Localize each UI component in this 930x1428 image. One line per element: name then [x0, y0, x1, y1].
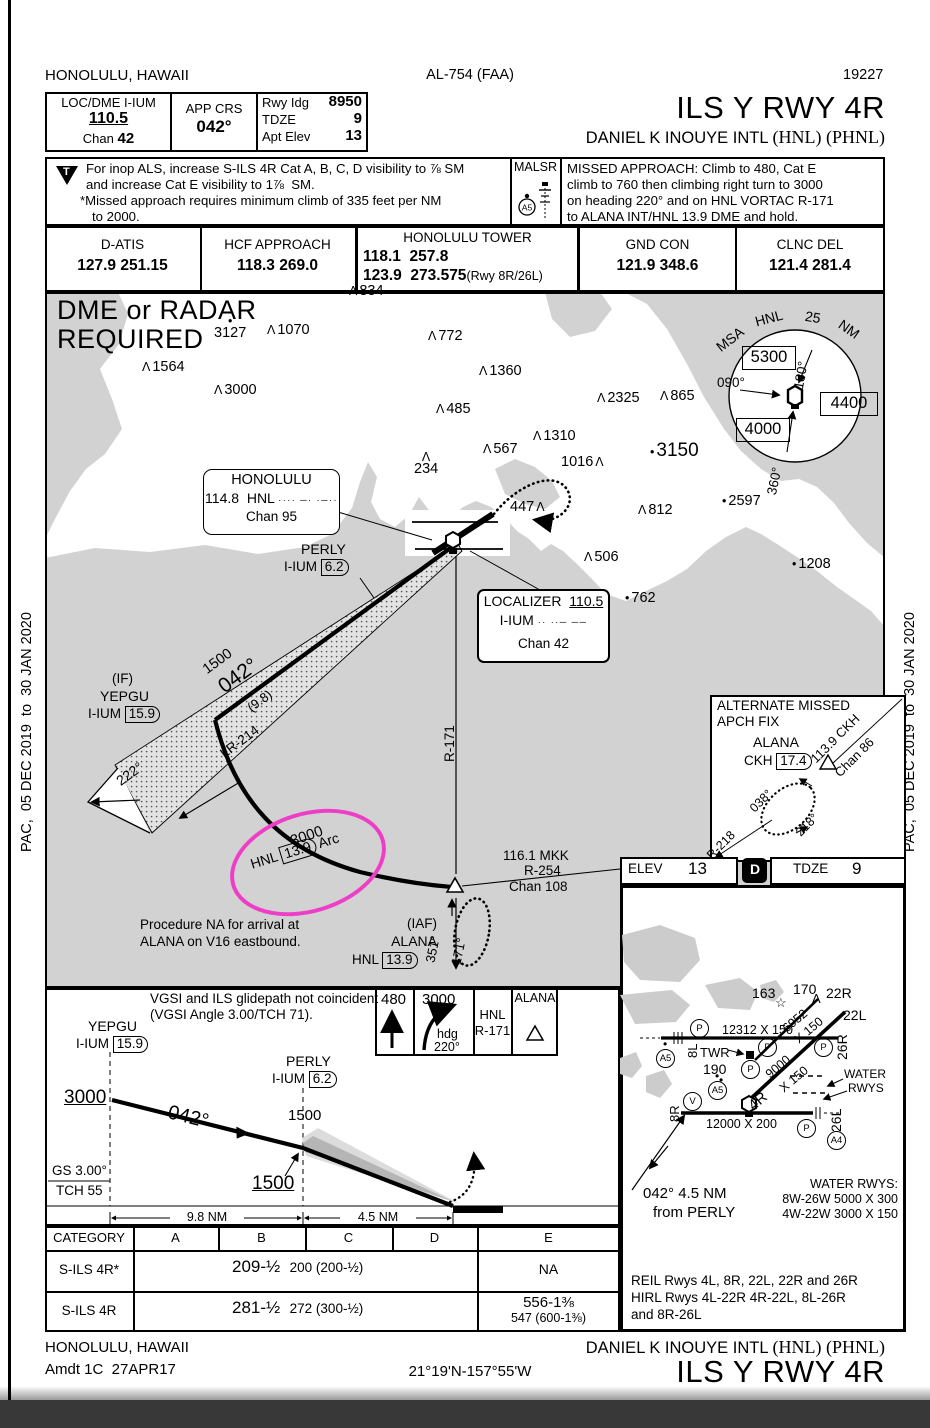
spot-elevation: •3127 — [214, 316, 246, 340]
sketch-rwy2-dims: 12000 X 200 — [706, 1118, 777, 1131]
localizer-chan: Chan 42 — [477, 637, 610, 651]
missed-approach-line4: to ALANA INT/HNL 13.9 DME and hold. — [567, 210, 798, 224]
alana-navaid: HNL — [352, 952, 379, 967]
water-rwys-pointer-2: RWYS — [848, 1082, 884, 1095]
tdze-bar-label: TDZE — [793, 862, 828, 876]
airport-name: DANIEL K INOUYE INTL — [586, 129, 768, 147]
water-rwys-title: WATER RWYS: — [780, 1178, 898, 1191]
tower-label: HONOLULU TOWER — [355, 231, 580, 245]
spot-elevation-value: 1070 — [277, 322, 309, 338]
spot-elevation: 1016Λ — [561, 454, 604, 470]
circle-a4: A4 — [827, 1131, 846, 1150]
sketch-elev-163: 163 — [752, 986, 775, 1001]
spot-elevation: Λ865 — [660, 388, 695, 404]
dot-icon: • — [625, 591, 629, 605]
footer-coords: 21°19'N-157°55'W — [370, 1364, 570, 1380]
approach-chart-page: PAC, 05 DEC 2019 to 30 JAN 2020 PAC, 05 … — [0, 0, 930, 1428]
lighting-note-3: and 8R-26L — [631, 1308, 702, 1322]
spot-elevation: Λ772 — [428, 328, 463, 344]
vgsi-note-2: (VGSI Angle 3.00/TCH 71). — [150, 1008, 313, 1022]
profile-perly-dme-box: 6.2 — [309, 1071, 337, 1088]
spot-elevation-value: 506 — [594, 549, 618, 565]
mkk-chan: Chan 108 — [509, 880, 568, 894]
inop-note-line1: For inop ALS, increase S-ILS 4R Cat A, B… — [86, 162, 464, 176]
rwy-ldg-label: Rwy Idg — [262, 96, 309, 110]
circle-a5-2: A5 — [708, 1081, 727, 1100]
localizer-ident: I-IUM — [500, 612, 534, 628]
missed-grid-div2 — [473, 988, 475, 1056]
takeoff-minimums-icon-letter: T — [63, 167, 70, 179]
missed-approach-line2: climb to 760 then climbing right turn to… — [567, 178, 823, 192]
minima-h1 — [45, 1250, 620, 1252]
circle-p-3: P — [741, 1060, 760, 1079]
localizer-title: LOCALIZER 110.5 — [477, 594, 610, 609]
alana-fix-dme: HNL 13.9 — [352, 952, 418, 969]
water-rwys-pointer-1: WATER — [844, 1068, 886, 1081]
profile-yepgu-ident: I-IUM — [76, 1036, 109, 1051]
minima-row2-paren: 272 (300-½) — [290, 1301, 364, 1316]
gs-angle: GS 3.00° — [52, 1164, 107, 1178]
chan-label: Chan — [83, 131, 114, 146]
minima-row2-category: S-ILS 4R — [45, 1304, 133, 1318]
tower-freq-1: 118.1 257.8 — [363, 249, 448, 265]
tch-value: TCH 55 — [56, 1184, 103, 1198]
sketch-rwy8l-label: 8L — [686, 1044, 700, 1058]
spot-elevation-value: 1360 — [489, 363, 521, 379]
hcf-label: HCF APPROACH — [200, 238, 355, 252]
profile-yepgu-dme-box: 15.9 — [113, 1036, 148, 1053]
tower-freq-2: 123.9 273.575(Rwy 8R/26L) — [363, 268, 543, 284]
page-bottom-band — [0, 1400, 930, 1428]
app-crs-label: APP CRS — [172, 102, 256, 116]
profile-alt-3000: 3000 — [64, 1088, 106, 1108]
datis-label: D-ATIS — [45, 238, 200, 252]
yepgu-ident: I-IUM — [88, 706, 121, 721]
profile-yepgu-name: YEPGU — [88, 1019, 137, 1034]
spot-elevation: 447Λ — [510, 499, 545, 515]
alana-fix-type: (IAF) — [337, 917, 437, 931]
spot-elevation: Λ1360 — [479, 363, 522, 379]
spot-elevation: Λ234 — [414, 452, 438, 476]
circle-v: V — [683, 1092, 702, 1111]
peak-icon: Λ — [214, 383, 222, 397]
water-rwy-1: 8W-26W 5000 X 300 — [770, 1193, 898, 1206]
honolulu-id: HNL — [247, 490, 275, 506]
inop-note-line2: and increase Cat E visibility to 1⅞ SM. — [86, 178, 315, 192]
chan-value: 42 — [118, 130, 135, 147]
localizer-freq: 110.5 — [569, 593, 603, 609]
elev-value: 13 — [688, 860, 707, 878]
water-rwy-2: 4W-22W 3000 X 150 — [770, 1208, 898, 1221]
spot-elevation-value: 1016 — [561, 454, 593, 470]
header-chart-number: 19227 — [843, 68, 883, 83]
vgsi-note-1: VGSI and ILS glidepath not coincident — [150, 992, 378, 1006]
planview-border — [45, 292, 885, 988]
spot-elevation: Λ1564 — [142, 359, 185, 375]
missed-alana: ALANA — [512, 992, 558, 1005]
segment-9-8nm: 9.8 NM — [170, 1211, 244, 1224]
apt-elev-label: Apt Elev — [262, 130, 310, 144]
spot-elevation-value: 772 — [438, 328, 462, 344]
tdze-label: TDZE — [262, 113, 296, 127]
perly-dme-box: 6.2 — [321, 559, 349, 576]
profile-perly-name: PERLY — [286, 1054, 331, 1069]
from-perly-line1: 042° 4.5 NM — [643, 1186, 727, 1202]
gnd-label: GND CON — [580, 238, 735, 252]
honolulu-morse: ···· ─· ·─·· — [278, 495, 338, 505]
minima-row2-main: 281-½ — [232, 1298, 280, 1317]
spot-elevation-value: 3127 — [214, 327, 246, 340]
apt-elev-value: 13 — [322, 128, 362, 144]
peak-icon: Λ — [595, 455, 603, 469]
minima-row2-value: 281-½ 272 (300-½) — [232, 1299, 363, 1317]
spot-elevation-value: 234 — [414, 463, 438, 476]
loc-chan: Chan 42 — [47, 131, 170, 147]
peak-icon: Λ — [483, 442, 491, 456]
sketch-rwy26r-label: 26R — [835, 1034, 850, 1060]
segment-4-5nm: 4.5 NM — [340, 1211, 416, 1224]
hcf-value: 118.3 269.0 — [200, 258, 355, 274]
profile-perly-ident: I-IUM — [272, 1071, 305, 1086]
lighting-note-1: REIL Rwys 4L, 8R, 22L, 22R and 26R — [631, 1274, 858, 1288]
yepgu-fix-dme: I-IUM 15.9 — [88, 706, 160, 723]
alt-missed-fix-name: ALANA — [753, 735, 799, 750]
circle-p-5: P — [797, 1119, 816, 1138]
elev-label: ELEV — [628, 862, 663, 876]
peak-icon: Λ — [584, 550, 592, 564]
spot-elevation: Λ812 — [638, 502, 673, 518]
spot-elevation: Λ567 — [483, 441, 518, 457]
honolulu-freq-value: 114.8 — [205, 490, 239, 506]
ckh-ident: CKH — [744, 753, 773, 768]
circle-a5-2-dot: • — [715, 1070, 719, 1083]
minima-row2-cat-e-1: 556-1⅜ — [477, 1295, 620, 1311]
sketch-twr-label: TWR — [700, 1046, 730, 1060]
from-perly-line2: from PERLY — [653, 1205, 735, 1221]
minima-col-e: E — [477, 1231, 620, 1245]
missed-hdg-value: 220° — [434, 1041, 460, 1054]
alt-missed-title-2: APCH FIX — [717, 715, 779, 729]
spot-elevation: Λ485 — [436, 401, 471, 417]
gnd-value: 121.9 348.6 — [580, 258, 735, 274]
malsr-icon: A5 — [514, 178, 558, 224]
header-city: HONOLULU, HAWAII — [45, 68, 189, 84]
yepgu-fix-name: YEPGU — [100, 689, 149, 704]
honolulu-name: HONOLULU — [203, 473, 340, 488]
r171-radial-label: R-171 — [443, 725, 457, 762]
minima-h2 — [45, 1291, 620, 1293]
missed-climb-3000: 3000 — [422, 992, 455, 1008]
mkk-freq-ident: 116.1 MKK — [503, 849, 569, 863]
localizer-word: LOCALIZER — [484, 593, 562, 609]
dot-icon: • — [722, 494, 726, 508]
perly-ident: I-IUM — [284, 559, 317, 574]
sketch-rwy22r-label: 22R — [826, 986, 852, 1001]
datis-value: 127.9 251.15 — [45, 258, 200, 274]
sketch-rwy22l-label: 22L — [843, 1008, 866, 1023]
minima-row1-main: 209-½ — [232, 1257, 280, 1276]
msa-title-25: 25 — [804, 309, 822, 326]
procedure-na-note-1: Procedure NA for arrival at — [140, 918, 299, 932]
svg-text:A5: A5 — [522, 203, 533, 213]
minima-row1-cat-e: NA — [477, 1262, 620, 1277]
app-crs-value: 042° — [172, 118, 256, 136]
dme-radar-required-2: REQUIRED — [57, 325, 204, 354]
peak-icon: Λ — [536, 500, 544, 514]
sketch-dot-190: • — [719, 1074, 723, 1087]
alt-missed-title-1: ALTERNATE MISSED — [717, 699, 850, 713]
airport-codes: (HNL) (PHNL) — [773, 127, 885, 147]
honolulu-freq: 114.8 HNL ···· ─· ·─·· — [203, 491, 340, 506]
spot-elevation-value: 1564 — [152, 359, 184, 375]
procedure-na-note-2: ALANA on V16 eastbound. — [140, 935, 301, 949]
peak-icon: Λ — [349, 284, 357, 298]
minima-row1-value: 209-½ 200 (200-½) — [232, 1258, 363, 1276]
peak-icon: Λ — [142, 360, 150, 374]
loc-label: LOC/DME I-IUM — [47, 96, 170, 110]
delta-d-letter: D — [750, 862, 760, 877]
peak-icon: Λ — [436, 402, 444, 416]
footer-amdt: Amdt 1C 27APR17 — [45, 1362, 176, 1378]
tower-freq-2-value: 123.9 273.575 — [363, 267, 466, 284]
spot-elevation-value: 3150 — [656, 440, 698, 462]
spot-elevation: Λ506 — [584, 549, 619, 565]
spot-elevation-value: 865 — [670, 388, 694, 404]
missed-approach-line3: on heading 220° and on HNL VORTAC R-171 — [567, 194, 834, 208]
dot-icon: • — [650, 445, 654, 459]
msa-sector-4000: 4000 — [736, 418, 790, 442]
circle-p-4: P — [814, 1038, 833, 1057]
spot-elevation-value: 2597 — [728, 493, 760, 509]
loc-freq: 110.5 — [47, 111, 170, 128]
sketch-star-icon: ☆ — [775, 996, 787, 1010]
inop-note-line4: to 2000. — [92, 210, 140, 224]
malsr-label: MALSR — [511, 161, 560, 174]
spot-elevation: Λ2325 — [597, 390, 640, 406]
minima-row1-paren: 200 (200-½) — [290, 1260, 364, 1275]
yepgu-fix-type: (IF) — [112, 672, 133, 686]
spot-elevation-value: 812 — [648, 502, 672, 518]
localizer-morse: ·· ··─ ── — [538, 617, 588, 627]
minima-row2-cat-e-2: 547 (600-1⅜) — [477, 1312, 620, 1325]
minima-row1-category: S-ILS 4R* — [45, 1263, 133, 1277]
peak-icon: Λ — [533, 429, 541, 443]
msa-sector-5300: 5300 — [742, 346, 796, 370]
footer-city: HONOLULU, HAWAII — [45, 1340, 189, 1356]
sketch-rwy8r-label: 8R — [668, 1105, 682, 1122]
spot-elevation-value: 762 — [631, 590, 655, 606]
localizer-ident-row: I-IUM ·· ··─ ── — [477, 613, 610, 628]
peak-icon: Λ — [660, 389, 668, 403]
spot-elevation-value: 447 — [510, 499, 534, 515]
honolulu-chan: Chan 95 — [203, 510, 340, 524]
alana-fix-name: ALANA — [337, 934, 437, 949]
spot-elevation-value: 1310 — [543, 428, 575, 444]
missed-grid-div1 — [413, 988, 415, 1056]
left-margin-date: PAC, 05 DEC 2019 to 30 JAN 2020 — [20, 612, 35, 852]
missed-approach-line1: MISSED APPROACH: Climb to 480, Cat E — [567, 162, 816, 176]
page-edge-line — [8, 0, 11, 1400]
notes-divider-2 — [560, 157, 562, 226]
spot-elevation-value: 485 — [446, 401, 470, 417]
ckh-dme-box: 17.4 — [776, 753, 811, 770]
tdze-value: 9 — [322, 111, 362, 127]
clnc-value: 121.4 281.4 — [735, 258, 885, 274]
footer-procedure: ILS Y RWY 4R — [585, 1356, 885, 1389]
inop-note-line3: *Missed approach requires minimum climb … — [80, 194, 441, 208]
chart-title: ILS Y RWY 4R — [585, 92, 885, 125]
alt-missed-fix-dme: CKH 17.4 — [744, 753, 812, 770]
tdze-bar-value: 9 — [852, 860, 861, 878]
missed-hnl: HNL — [474, 1008, 511, 1022]
peak-icon: Λ — [428, 329, 436, 343]
spot-elevation: •3150 — [650, 440, 699, 462]
missed-r171: R-171 — [474, 1024, 511, 1038]
yepgu-dme-box: 15.9 — [125, 706, 160, 723]
chart-airport: DANIEL K INOUYE INTL (HNL) (PHNL) — [485, 128, 885, 147]
profile-alt-1500-at-perly: 1500 — [288, 1108, 321, 1124]
msa-bearing-090: 090° — [717, 376, 745, 390]
circle-p-1: P — [690, 1019, 709, 1038]
circle-a5-1-dot: • — [663, 1038, 667, 1051]
minima-col-c: C — [305, 1231, 392, 1245]
circle-p-2: P — [758, 1038, 777, 1057]
airport-sketch-art — [620, 885, 906, 1332]
peak-icon: Λ — [597, 391, 605, 405]
rwy-ldg-value: 8950 — [322, 94, 362, 110]
spot-elevation-value: 834 — [359, 283, 383, 299]
tower-freq-2-note: (Rwy 8R/26L) — [466, 269, 542, 283]
spot-elevation: •2597 — [722, 493, 761, 509]
minima-col-b: B — [218, 1231, 305, 1245]
spot-elevation-value: 567 — [493, 441, 517, 457]
spot-elevation: Λ1070 — [267, 322, 310, 338]
spot-elevation: •762 — [625, 590, 656, 606]
minima-col-d: D — [392, 1231, 477, 1245]
alana-dme-box: 13.9 — [382, 952, 417, 969]
peak-icon: Λ — [479, 364, 487, 378]
spot-elevation: Λ834 — [349, 283, 384, 299]
profile-perly-dme: I-IUM 6.2 — [272, 1071, 337, 1088]
minima-col-category: CATEGORY — [45, 1231, 133, 1245]
spot-elevation: Λ3000 — [214, 382, 257, 398]
minima-col-a: A — [133, 1231, 218, 1245]
spot-elevation-value: 1208 — [798, 556, 830, 572]
perly-fix-name: PERLY — [301, 542, 346, 557]
dot-icon: • — [792, 557, 796, 571]
perly-fix-dme: I-IUM 6.2 — [284, 559, 349, 576]
clnc-label: CLNC DEL — [735, 238, 885, 252]
profile-yepgu-dme: I-IUM 15.9 — [76, 1036, 148, 1053]
lighting-note-2: HIRL Rwys 4L-22R 4R-22L, 8L-26R — [631, 1291, 846, 1305]
header-al-number: AL-754 (FAA) — [395, 68, 545, 83]
circle-a5-1: A5 — [656, 1049, 675, 1068]
spot-elevation: Λ1310 — [533, 428, 576, 444]
missed-climb-480: 480 — [381, 992, 406, 1008]
msa-sector-4400: 4400 — [820, 392, 878, 416]
spot-elevation: •1208 — [792, 556, 831, 572]
profile-min-1500: 1500 — [252, 1174, 294, 1194]
spot-elevation-value: 3000 — [224, 382, 256, 398]
sketch-rwy26l-label: 26L — [829, 1109, 844, 1132]
sketch-peak-icon: Λ — [812, 992, 821, 1006]
peak-icon: Λ — [638, 503, 646, 517]
mkk-radial: R-254 — [524, 864, 561, 878]
spot-elevation-value: 2325 — [607, 390, 639, 406]
peak-icon: Λ — [267, 323, 275, 337]
